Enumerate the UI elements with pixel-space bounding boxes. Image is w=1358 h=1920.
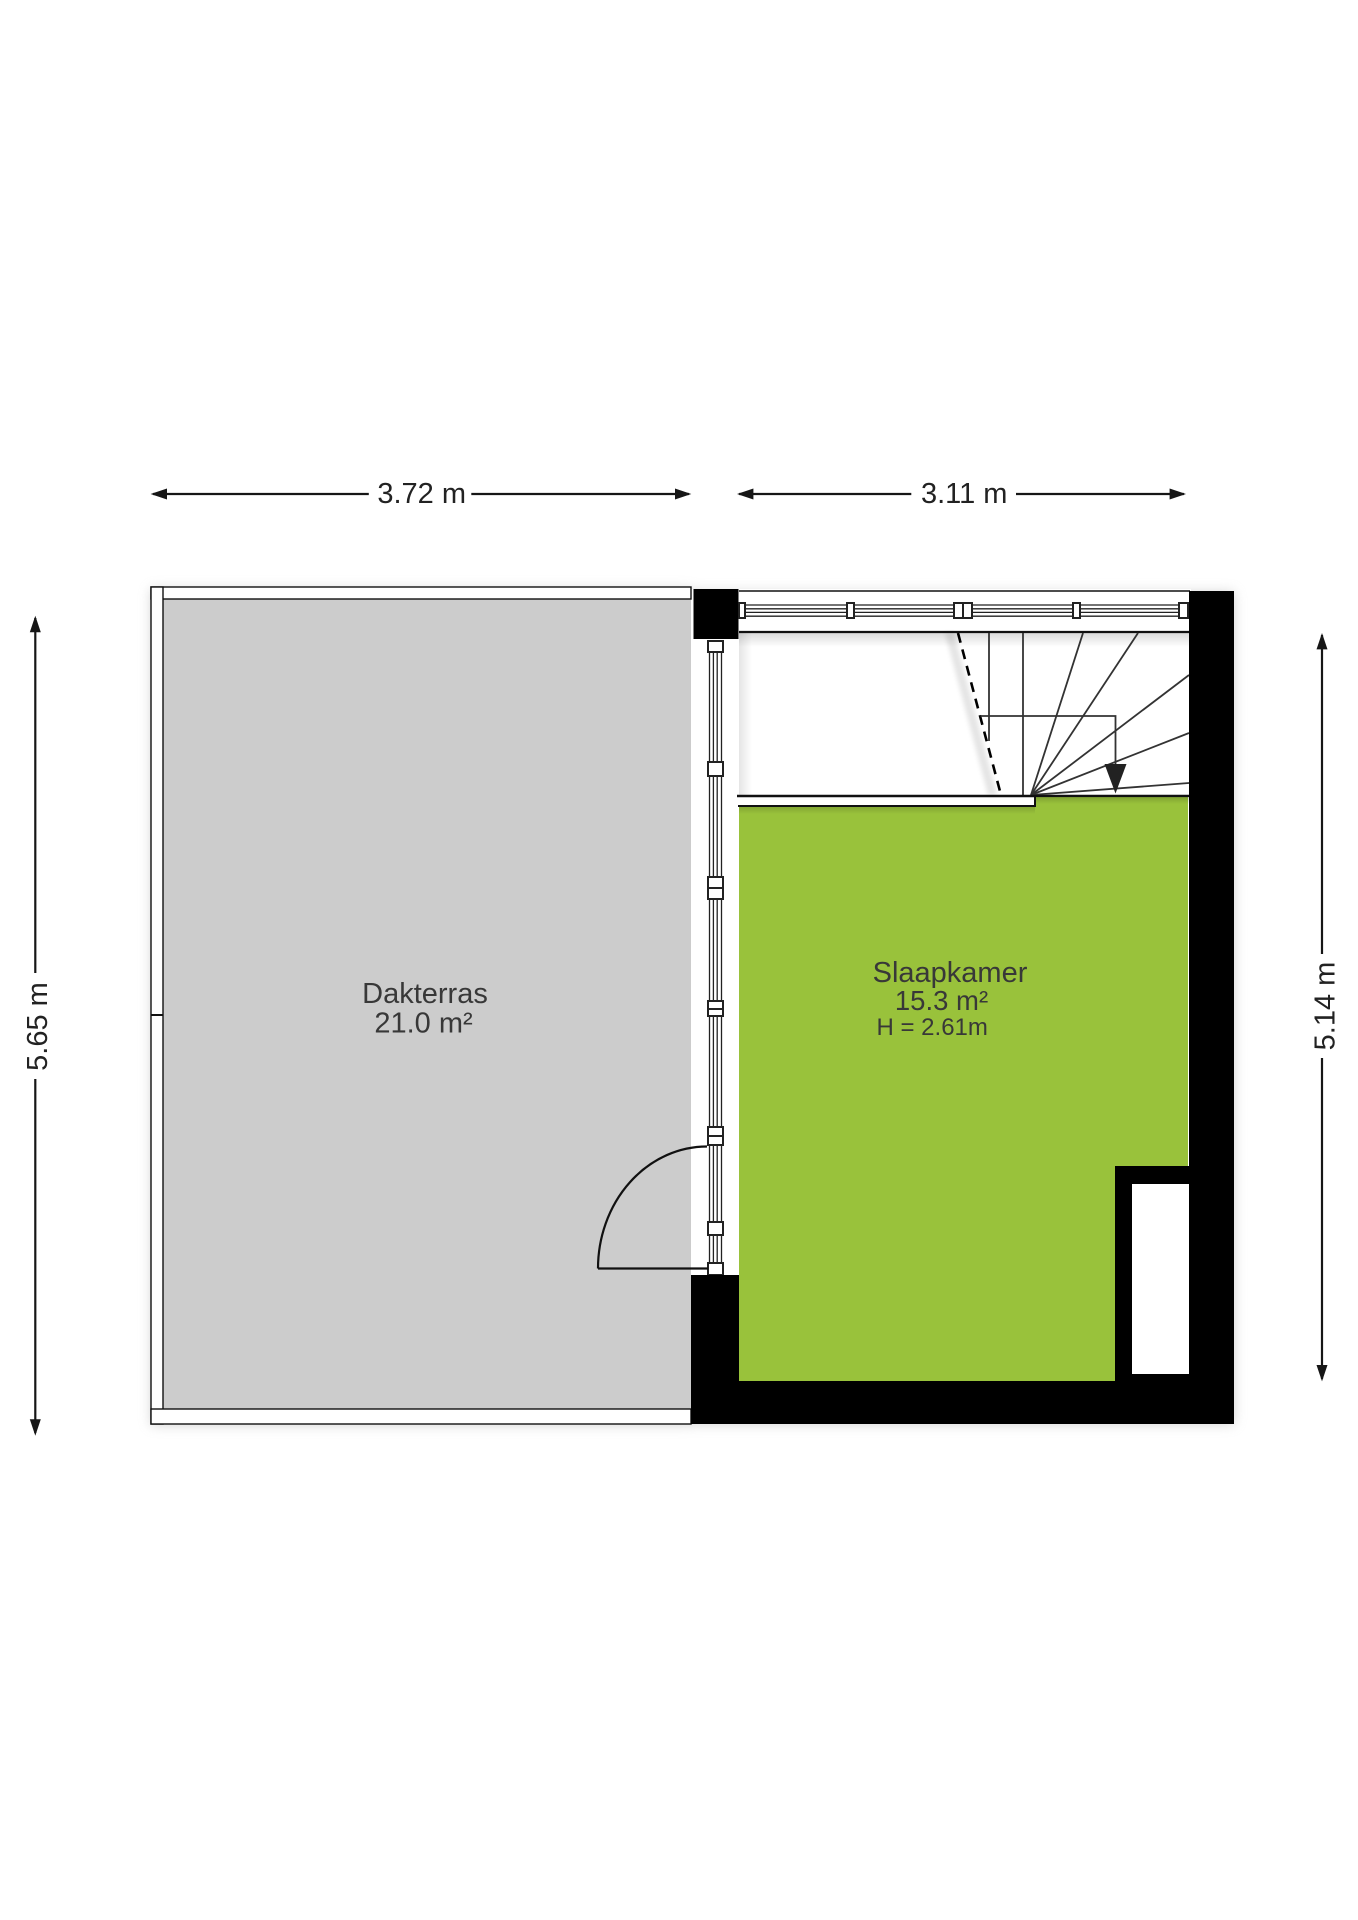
svg-text:3.72 m: 3.72 m	[377, 478, 466, 510]
svg-text:H = 2.61m: H = 2.61m	[877, 1014, 988, 1041]
svg-text:3.11 m: 3.11 m	[921, 478, 1008, 510]
svg-text:5.14 m: 5.14 m	[1310, 962, 1342, 1051]
svg-text:Dakterras: Dakterras	[362, 978, 488, 1010]
svg-text:15.3 m²: 15.3 m²	[895, 985, 988, 1016]
svg-text:5.65 m: 5.65 m	[22, 982, 54, 1071]
svg-text:21.0 m²: 21.0 m²	[374, 1008, 473, 1040]
